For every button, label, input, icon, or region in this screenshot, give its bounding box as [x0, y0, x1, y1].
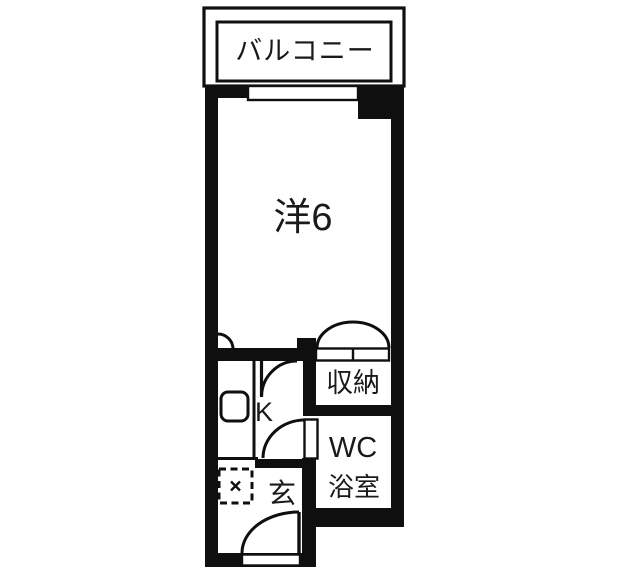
door-arc-room-left [218, 334, 233, 349]
western-room-label: 洋6 [273, 197, 332, 239]
storage-label: 収納 [326, 368, 380, 398]
entrance-area: 玄 [219, 469, 300, 566]
storage-double-door [316, 322, 389, 361]
storage-door-arc-right [353, 322, 389, 348]
bath-label: 浴室 [328, 472, 380, 502]
storage-door-arc-left [317, 322, 353, 348]
window-sliding [248, 86, 358, 100]
wall-wc-bottom [302, 508, 404, 527]
entrance-label: 玄 [268, 478, 296, 509]
entrance-door-arc [242, 512, 299, 553]
kitchen-sink-icon [221, 392, 248, 421]
wall-hall-entrance [255, 459, 303, 468]
room-balcony: バルコニー [204, 8, 404, 86]
balcony-label: バルコニー [235, 36, 374, 66]
wall-right [391, 85, 404, 527]
wall-left [205, 85, 218, 567]
floorplan-drawing: バルコニー 洋6 収納 [0, 0, 640, 575]
entrance-door-threshold [242, 555, 300, 566]
kitchen-label: K [255, 397, 273, 427]
wc-door-leaf [305, 420, 318, 459]
wall-storage-bottom [303, 405, 404, 416]
door-arc-room-hall [262, 361, 298, 397]
floorplan-canvas: バルコニー 洋6 収納 [0, 0, 640, 575]
door-room-to-hall [262, 361, 298, 397]
wc-label: WC [329, 432, 377, 464]
